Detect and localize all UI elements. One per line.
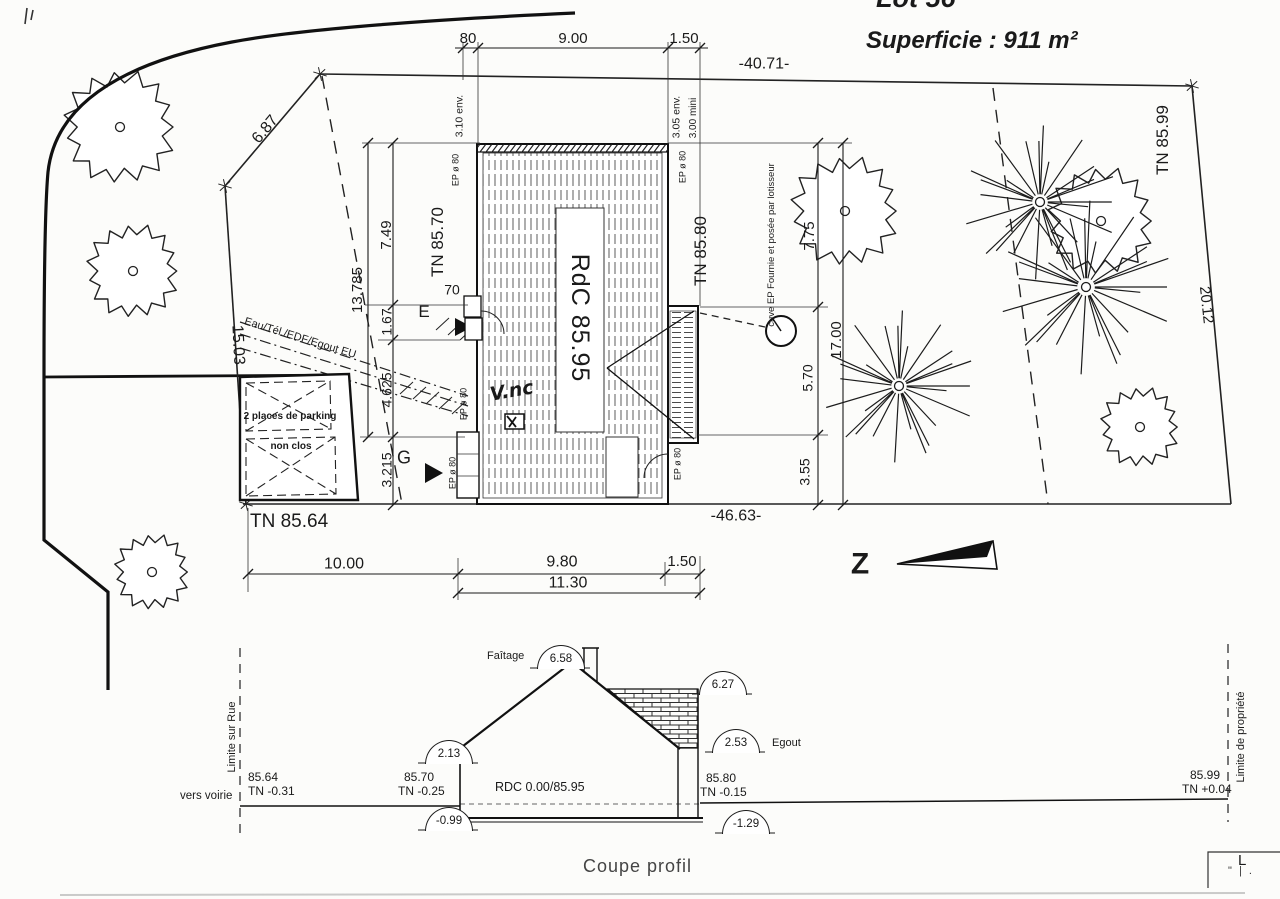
dim-9-80: 9.80 xyxy=(546,555,577,572)
north-arrow xyxy=(897,541,997,569)
plot-boundary xyxy=(225,74,1231,504)
dim-40-71: -40.71- xyxy=(739,57,790,74)
ep-80-label: EP ø 80 xyxy=(673,448,682,480)
dim-46-63: -46.63- xyxy=(711,509,762,526)
ep-80-label: EP ø 80 xyxy=(451,154,460,186)
superficie: Superficie : 911 m² xyxy=(866,28,1078,53)
dim-9-00: 9.00 xyxy=(558,31,587,47)
dim-1-67: 1.67 xyxy=(380,308,395,335)
dim-3-00-mini: 3.00 mini xyxy=(689,98,700,139)
ep-80-label: EP ø 80 xyxy=(678,151,687,183)
section-title: Coupe profil xyxy=(583,857,692,876)
dim-4-625: 4.625 xyxy=(380,372,395,407)
brick-gable xyxy=(608,689,698,748)
roof-window xyxy=(606,437,638,497)
elev-rdc: RDC 0.00/85.95 xyxy=(495,781,585,794)
dim-20-12: 20.12 xyxy=(1196,286,1216,325)
parking-label-2: non clos xyxy=(270,442,311,453)
g-triangle xyxy=(425,463,443,483)
site-plan-sheet: Lot 56 Superficie : 911 m² 80 9.00 1.50 … xyxy=(0,0,1280,899)
ep-80-label: EP ø 80 xyxy=(459,388,468,420)
corner-marks: " | . xyxy=(1228,866,1254,878)
g-marker: G xyxy=(397,449,411,468)
dim-1-50-top: 1.50 xyxy=(669,31,698,47)
dim-3-05-env: 3.05 env. xyxy=(671,96,682,138)
ep-80-label: EP ø 80 xyxy=(448,457,457,489)
elev-85-99: 85.99 xyxy=(1190,769,1220,782)
dim-3-10-env: 3.10 env. xyxy=(454,95,465,137)
dim-7-75: 7.75 xyxy=(802,221,818,250)
north-label: Z xyxy=(851,548,869,580)
dim-7-49: 7.49 xyxy=(379,220,395,249)
dim-13-785: 13.785 xyxy=(350,267,366,313)
tn-85-99: TN 85.99 xyxy=(1154,105,1172,175)
elev-tn-004: TN +0.04 xyxy=(1182,783,1232,796)
tn-85-80: TN 85.80 xyxy=(692,216,710,286)
vers-voirie-label: vers voirie xyxy=(180,790,232,802)
elev-85-80: 85.80 xyxy=(706,772,736,785)
dim-5-70: 5.70 xyxy=(801,364,816,391)
plan-linework xyxy=(0,0,1280,899)
rdc-level: RdC 85.95 xyxy=(567,254,593,383)
dim-80: 80 xyxy=(460,31,477,47)
label-70: 70 xyxy=(444,283,460,298)
elev-tn-031: TN -0.31 xyxy=(248,785,295,798)
parking-label-1: 2 places de parking xyxy=(244,412,337,423)
elev-tn-015: TN -0.15 xyxy=(700,786,747,799)
dim-11-30: 11.30 xyxy=(549,576,588,593)
dim-1-50-bottom: 1.50 xyxy=(667,554,696,570)
elev-tn-025: TN -0.25 xyxy=(398,785,445,798)
tn-85-64: TN 85.64 xyxy=(250,512,328,532)
dim-17-00: 17.00 xyxy=(829,321,845,359)
elev-85-64: 85.64 xyxy=(248,771,278,784)
entry-marker: E xyxy=(418,303,429,321)
cuve-label: cuve EP Fournie et posée par lotisseur xyxy=(767,163,777,327)
dim-10-00: 10.00 xyxy=(324,557,364,574)
lot-number: Lot 56 xyxy=(876,0,956,12)
elev-85-70: 85.70 xyxy=(404,771,434,784)
faitage-label: Faîtage xyxy=(487,651,524,663)
egout-label: Egout xyxy=(772,738,801,750)
tn-85-70: TN 85.70 xyxy=(429,207,447,277)
dim-3-215: 3.215 xyxy=(380,452,395,487)
dim-15-03: 15.03 xyxy=(228,325,247,366)
limite-rue-label: Limite sur Rue xyxy=(227,702,239,773)
dim-3-55: 3.55 xyxy=(798,458,813,485)
limite-propriete-label: Limite de propriété xyxy=(1236,691,1248,782)
parking-area xyxy=(240,374,358,500)
